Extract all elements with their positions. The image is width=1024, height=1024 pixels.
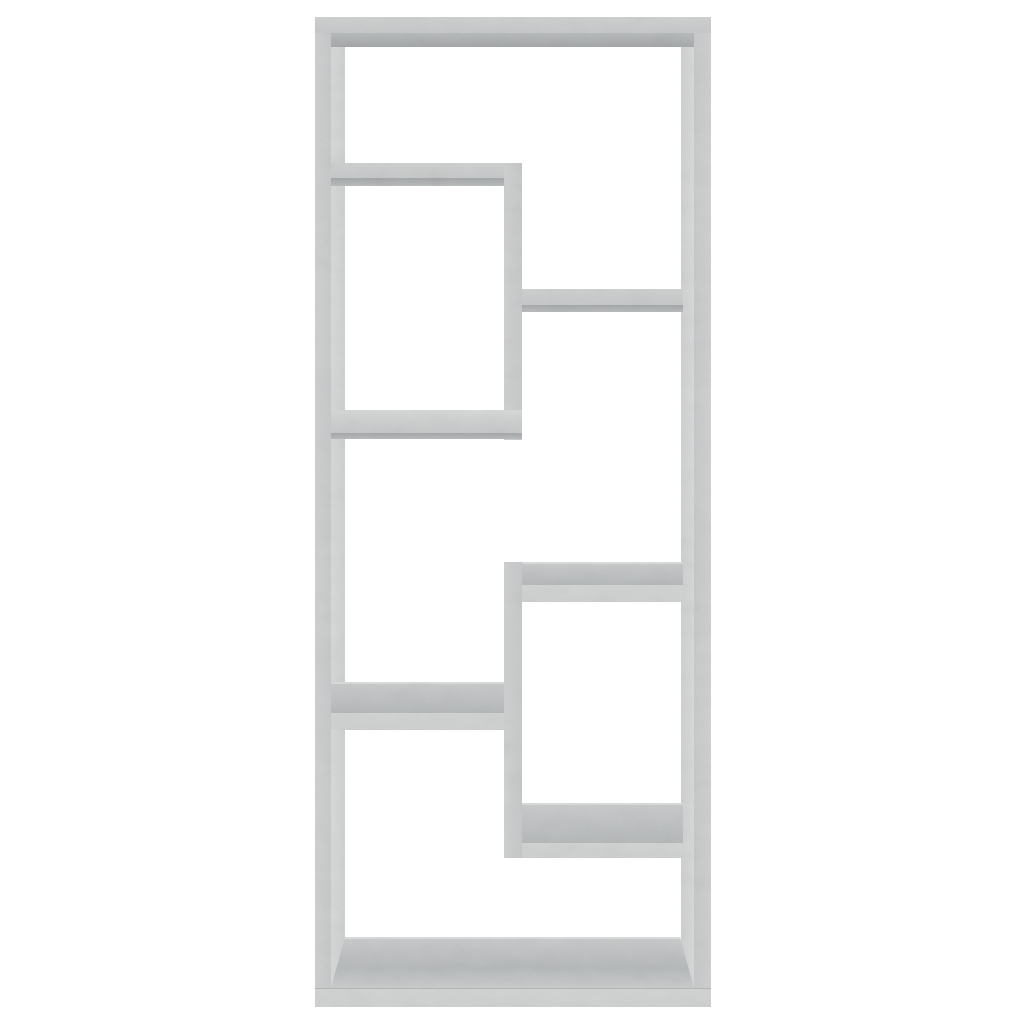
shelf-d-top-surface [331,682,504,712]
frame-right-inner-face [681,17,694,1007]
divider-upper [504,163,522,440]
shelf-c-front-face [522,289,683,305]
product-photo-canvas [0,0,1024,1024]
frame-left-inner-face [331,17,345,1007]
shelf-a-underside [331,178,504,186]
shelf-d-front-face [331,712,504,730]
divider-lower [504,562,522,858]
shelf-f-top-surface [522,803,683,842]
shelf-a-front-face [331,163,504,178]
shelf-b-underside [331,433,522,439]
frame-bottom-top-surface [331,937,694,988]
frame-left-front-face [315,17,331,1007]
shelf-b-front-face [331,420,522,433]
shelf-b-top-edge [331,410,522,420]
frame-top-front-face [315,17,711,33]
wall-shelf-unit [0,0,1024,1024]
shelf-f-front-face [522,842,683,858]
frame-top-underside [331,33,694,47]
shelf-e-top-surface [522,562,683,584]
shelf-e-front-face [522,584,683,602]
frame-right-front-face [694,17,711,1007]
shelf-c-underside [522,305,683,312]
frame-bottom-front-face [315,988,711,1007]
